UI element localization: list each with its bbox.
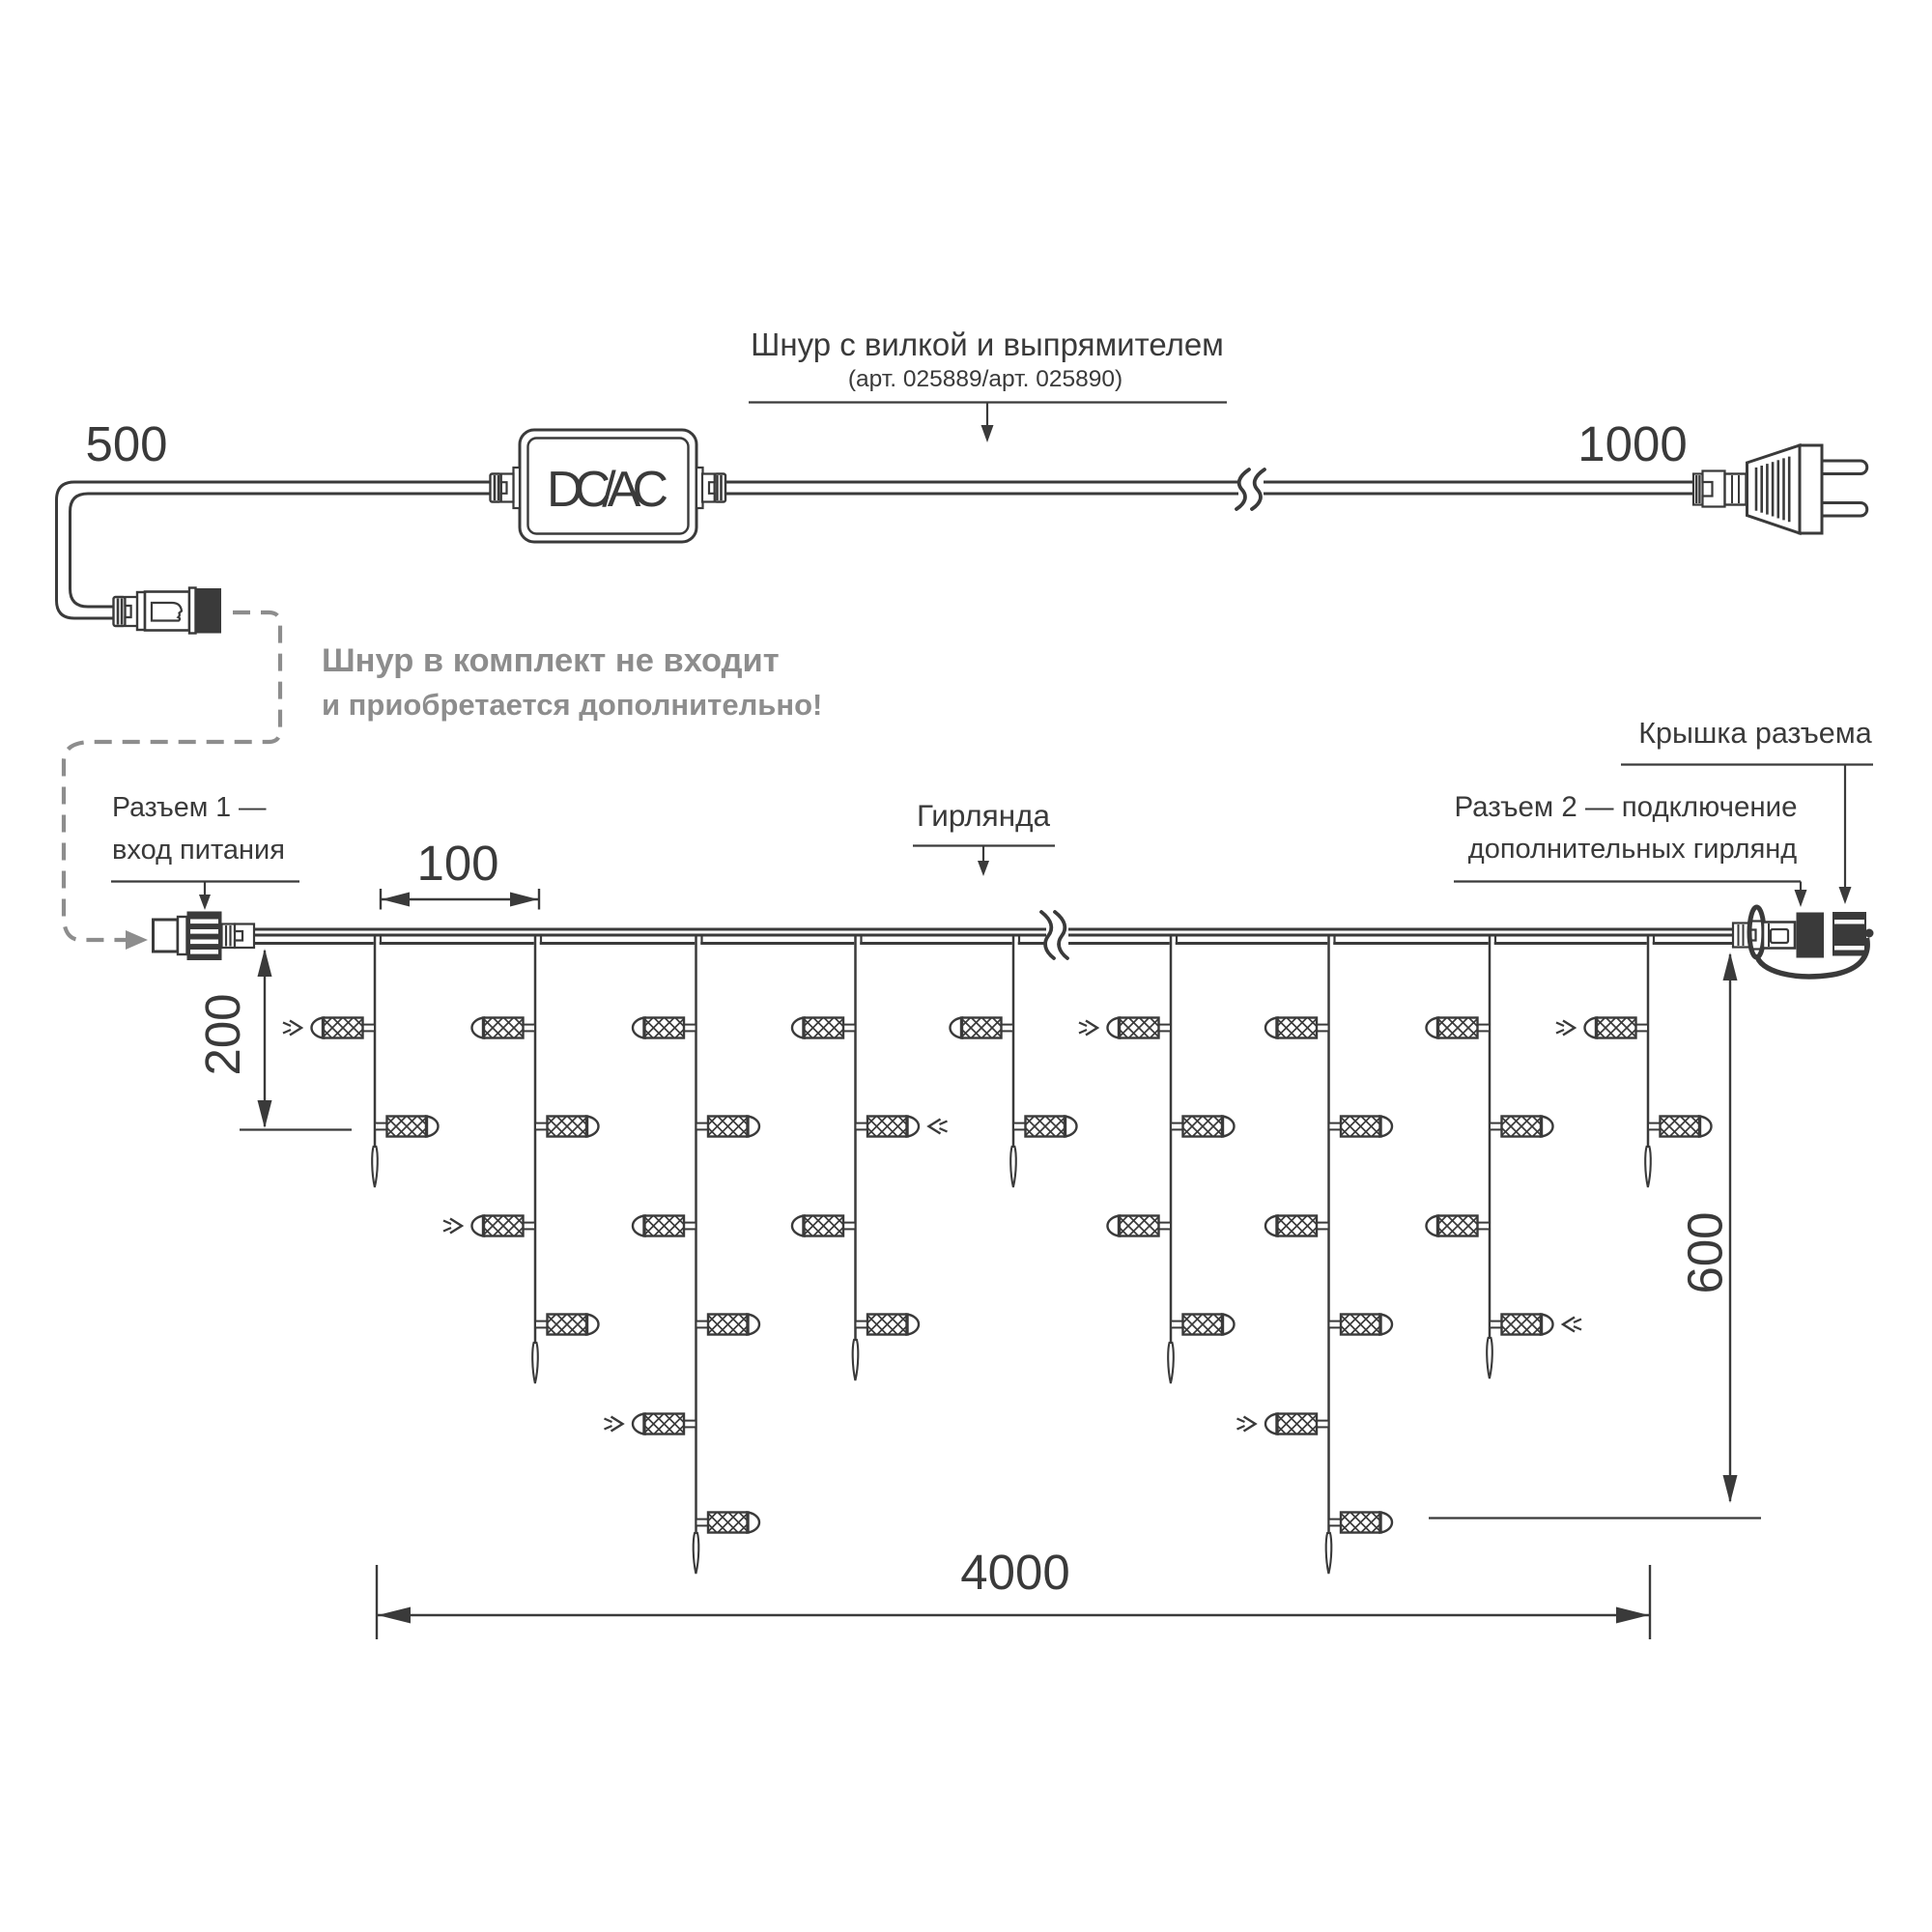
svg-text:4000: 4000 <box>960 1545 1069 1600</box>
svg-text:DC/AC: DC/AC <box>547 462 668 518</box>
svg-text:Крышка разъема: Крышка разъема <box>1638 717 1871 750</box>
svg-text:600: 600 <box>1678 1211 1733 1293</box>
svg-text:дополнительных гирлянд: дополнительных гирлянд <box>1468 834 1798 865</box>
svg-text:Шнур в комплект не входит: Шнур в комплект не входит <box>322 642 780 679</box>
svg-text:(арт. 025889/арт. 025890): (арт. 025889/арт. 025890) <box>848 366 1122 392</box>
svg-text:200: 200 <box>195 993 250 1075</box>
svg-text:1000: 1000 <box>1577 416 1687 471</box>
svg-text:100: 100 <box>416 836 498 891</box>
svg-text:Шнур с вилкой и выпрямителем: Шнур с вилкой и выпрямителем <box>751 327 1224 362</box>
svg-text:Гирлянда: Гирлянда <box>917 798 1051 833</box>
svg-text:Разъем 1 —: Разъем 1 — <box>112 792 267 823</box>
svg-text:вход питания: вход питания <box>112 835 285 866</box>
svg-text:500: 500 <box>85 416 167 471</box>
svg-text:Разъем 2 — подключение: Разъем 2 — подключение <box>1454 791 1797 823</box>
svg-text:и приобретается дополнительно!: и приобретается дополнительно! <box>322 688 822 722</box>
